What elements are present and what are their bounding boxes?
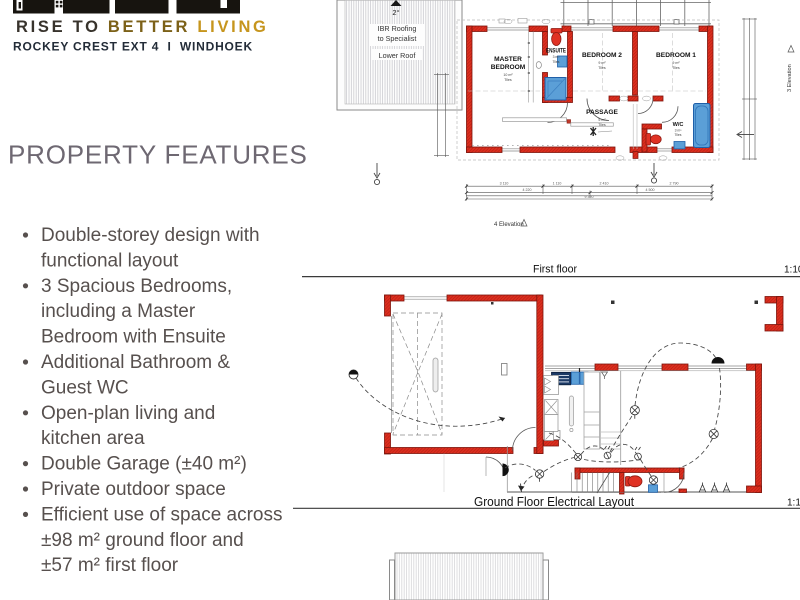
svg-text:functional layout: functional layout: [41, 250, 179, 271]
svg-text:ENSUITE: ENSUITE: [546, 49, 566, 55]
svg-text:RISE TO BETTER LIVING: RISE TO BETTER LIVING: [16, 18, 269, 36]
svg-text:Tiles: Tiles: [598, 66, 606, 70]
svg-text:BEDROOM 1: BEDROOM 1: [656, 52, 696, 59]
svg-text:5 m²: 5 m²: [598, 118, 606, 122]
svg-text:Additional Bathroom &: Additional Bathroom &: [41, 352, 230, 373]
svg-text:Open-plan living and: Open-plan living and: [41, 403, 215, 424]
svg-text:4 500: 4 500: [646, 188, 655, 192]
svg-text:4 220: 4 220: [523, 188, 532, 192]
svg-text:Double-storey design with: Double-storey design with: [41, 225, 260, 246]
svg-text:PASSAGE: PASSAGE: [586, 109, 618, 116]
svg-text:Guest WC: Guest WC: [41, 377, 129, 398]
svg-text:Lower Roof: Lower Roof: [379, 51, 416, 60]
svg-text:Bedroom with Ensuite: Bedroom with Ensuite: [41, 327, 226, 348]
svg-text:Tiles: Tiles: [674, 133, 681, 137]
svg-text:9 m²: 9 m²: [672, 61, 680, 65]
svg-text:IBR Roofing: IBR Roofing: [378, 24, 417, 33]
svg-text:9 320: 9 320: [585, 195, 594, 199]
svg-text:2 790: 2 790: [670, 182, 679, 186]
svg-text:PROPERTY FEATURES: PROPERTY FEATURES: [8, 140, 308, 170]
svg-text:to Specialist: to Specialist: [378, 34, 417, 43]
svg-text:9 m²: 9 m²: [598, 61, 606, 65]
svg-text:3 m²: 3 m²: [675, 129, 683, 133]
svg-text:ROCKEY CREST EXT 4 I WINDHOE: ROCKEY CREST EXT 4 I WINDHOEK: [13, 40, 253, 54]
svg-text:2 410: 2 410: [600, 182, 609, 186]
svg-text:BEDROOM: BEDROOM: [491, 64, 526, 71]
svg-text:10 m²: 10 m²: [503, 73, 513, 77]
svg-text:4 Elevation: 4 Elevation: [494, 222, 524, 228]
svg-text:3 Elevation: 3 Elevation: [787, 64, 793, 92]
svg-text:W/C: W/C: [673, 122, 684, 128]
svg-text:including a Master: including a Master: [41, 301, 196, 322]
svg-text:Tiles: Tiles: [598, 123, 606, 127]
svg-text:kitchen area: kitchen area: [41, 428, 145, 449]
svg-text:1 110: 1 110: [553, 182, 562, 186]
svg-text:Tiles: Tiles: [504, 78, 512, 82]
svg-text:MASTER: MASTER: [494, 56, 522, 63]
svg-text:BEDROOM 2: BEDROOM 2: [582, 52, 622, 59]
svg-text:1:100: 1:100: [787, 498, 800, 509]
svg-text:Tiles: Tiles: [672, 66, 680, 70]
svg-text:1:100: 1:100: [784, 265, 800, 276]
svg-text:Efficient use of space across: Efficient use of space across: [41, 504, 283, 525]
svg-text:2°: 2°: [392, 8, 399, 17]
svg-text:Private outdoor space: Private outdoor space: [41, 479, 226, 500]
svg-text:3 110: 3 110: [500, 182, 509, 186]
svg-text:±98 m² ground floor and: ±98 m² ground floor and: [41, 530, 244, 551]
svg-text:Tiles: Tiles: [552, 60, 559, 64]
svg-text:Double Garage (±40 m²): Double Garage (±40 m²): [41, 454, 247, 475]
svg-text:3 m²: 3 m²: [553, 55, 561, 59]
svg-text:Ground Floor Electrical Layout: Ground Floor Electrical Layout: [474, 494, 634, 509]
svg-text:First floor: First floor: [533, 264, 577, 276]
svg-text:±57 m² first floor: ±57 m² first floor: [41, 555, 179, 576]
svg-text:3 Spacious Bedrooms,: 3 Spacious Bedrooms,: [41, 276, 232, 297]
